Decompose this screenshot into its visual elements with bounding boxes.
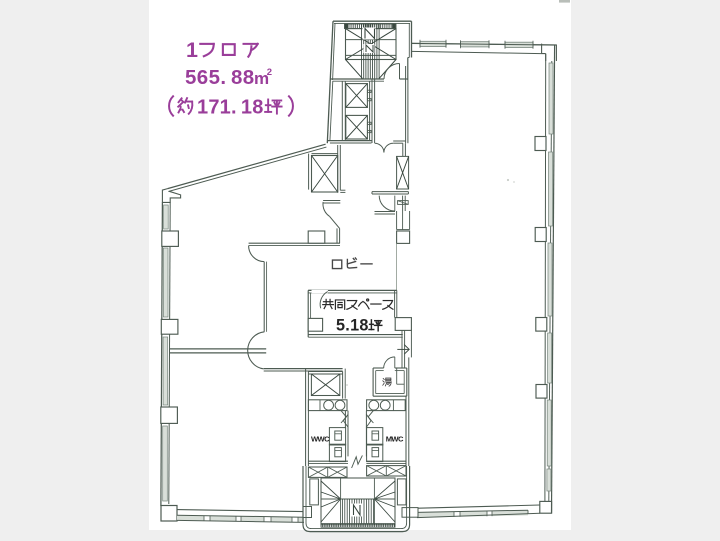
- svg-text:2: 2: [267, 67, 272, 78]
- svg-text:5.18: 5.18: [336, 317, 369, 335]
- svg-text:171. 18: 171. 18: [197, 96, 264, 118]
- svg-text:1: 1: [186, 38, 198, 62]
- svg-text:WWC: WWC: [311, 434, 330, 443]
- svg-text:565. 88: 565. 88: [185, 66, 255, 89]
- svg-text:MWC: MWC: [386, 434, 404, 443]
